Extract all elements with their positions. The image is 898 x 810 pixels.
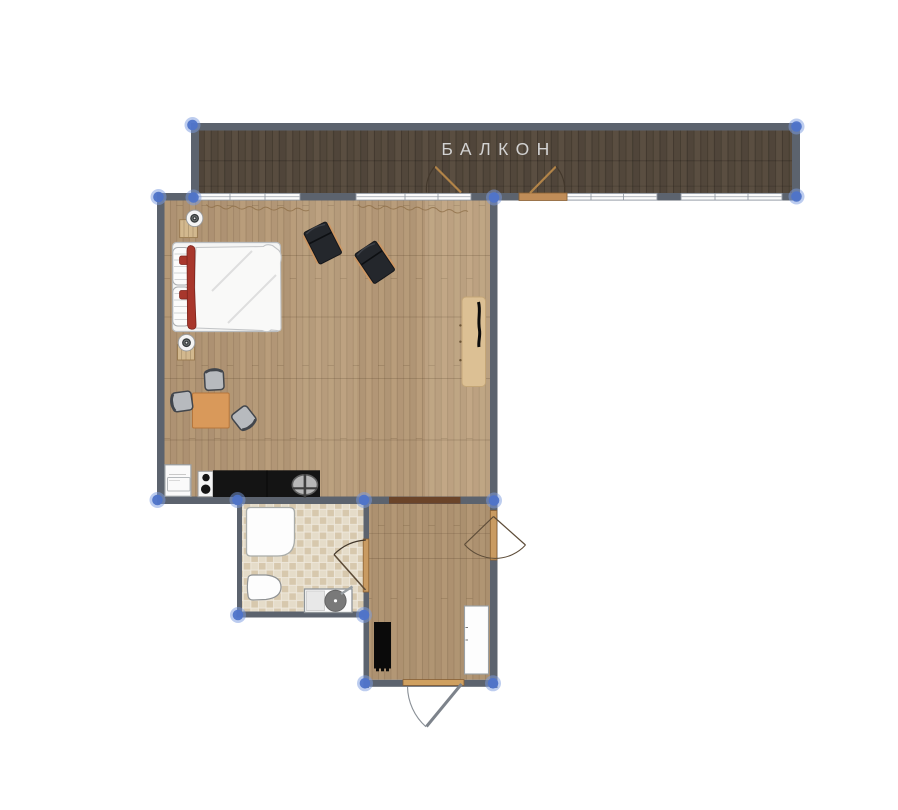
svg-text:БАЛКОН: БАЛКОН — [441, 139, 556, 159]
